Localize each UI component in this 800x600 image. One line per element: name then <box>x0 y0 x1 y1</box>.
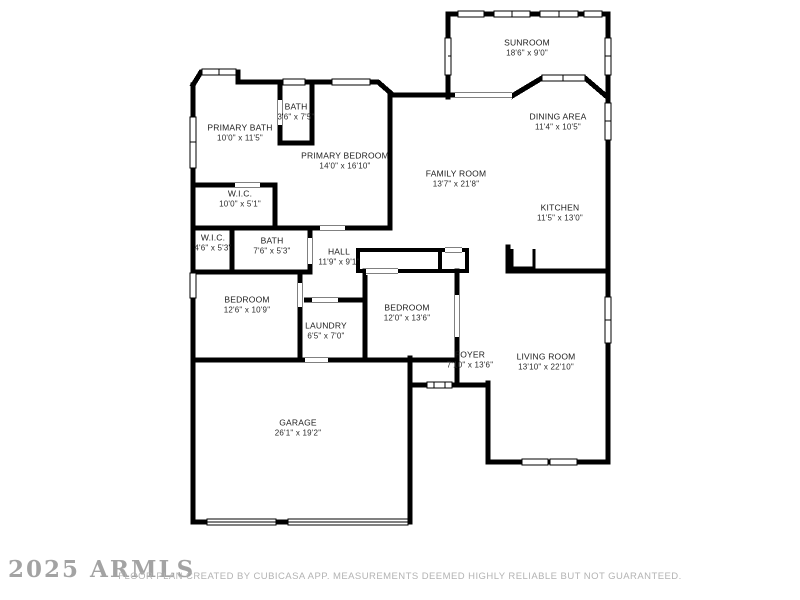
exterior-walls <box>193 14 608 522</box>
windows <box>190 11 611 465</box>
floor-plan-page: SUNROOM18'6" x 9'0"DINING AREA11'4" x 10… <box>0 0 800 600</box>
garage-doors <box>207 519 408 525</box>
interior-walls <box>193 82 608 385</box>
front-door <box>427 382 452 388</box>
floor-plan-drawing <box>0 0 800 600</box>
kitchen-counter <box>512 249 534 268</box>
attribution-text: FLOOR PLAN CREATED BY CUBICASA APP. MEAS… <box>0 571 800 582</box>
